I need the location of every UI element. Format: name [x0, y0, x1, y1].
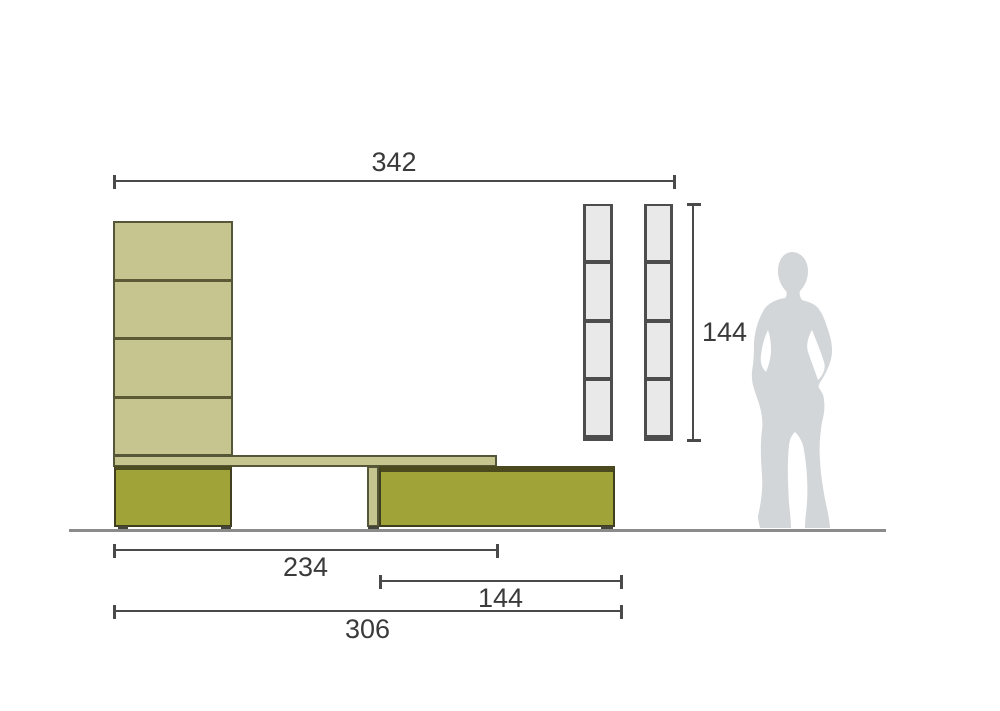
tower-compartment — [647, 260, 670, 318]
dim-label-base-span: 306 — [114, 616, 621, 643]
column-panel-3 — [115, 337, 231, 396]
dimension-top-width — [114, 180, 674, 182]
dim-label-top-width: 342 — [114, 149, 674, 176]
tower-compartment — [586, 377, 610, 435]
dim-tick-left — [113, 175, 116, 189]
dim-label-tower-height: 144 — [702, 319, 747, 346]
dimension-cabinet-span — [380, 580, 621, 582]
wall-column — [113, 221, 233, 456]
base-cabinet-right — [379, 466, 615, 527]
dimension-base-span — [114, 610, 621, 612]
tower-compartment — [647, 206, 670, 260]
dim-tick-right — [673, 175, 676, 189]
diagram-canvas: 342 144 — [0, 0, 1000, 711]
wall-tower-1 — [583, 204, 613, 441]
dim-label-shelf-span: 234 — [114, 554, 497, 581]
dim-tick-top — [687, 203, 701, 206]
tower-compartment — [647, 319, 670, 377]
support-leg — [367, 466, 379, 527]
person-silhouette-icon — [745, 245, 857, 531]
dim-label-cabinet-span: 144 — [380, 585, 621, 612]
dimension-tower-height — [692, 204, 694, 440]
column-panel-1 — [115, 223, 231, 279]
tower-compartment — [586, 206, 610, 260]
dim-tick-bottom — [687, 439, 701, 442]
tower-compartment — [647, 377, 670, 435]
column-panel-2 — [115, 279, 231, 338]
tower-compartment — [586, 260, 610, 318]
tower-compartment — [586, 319, 610, 377]
column-panel-4 — [115, 396, 231, 455]
wall-tower-2 — [644, 204, 673, 441]
dimension-shelf-span — [114, 549, 497, 551]
base-cabinet-left — [114, 466, 232, 527]
